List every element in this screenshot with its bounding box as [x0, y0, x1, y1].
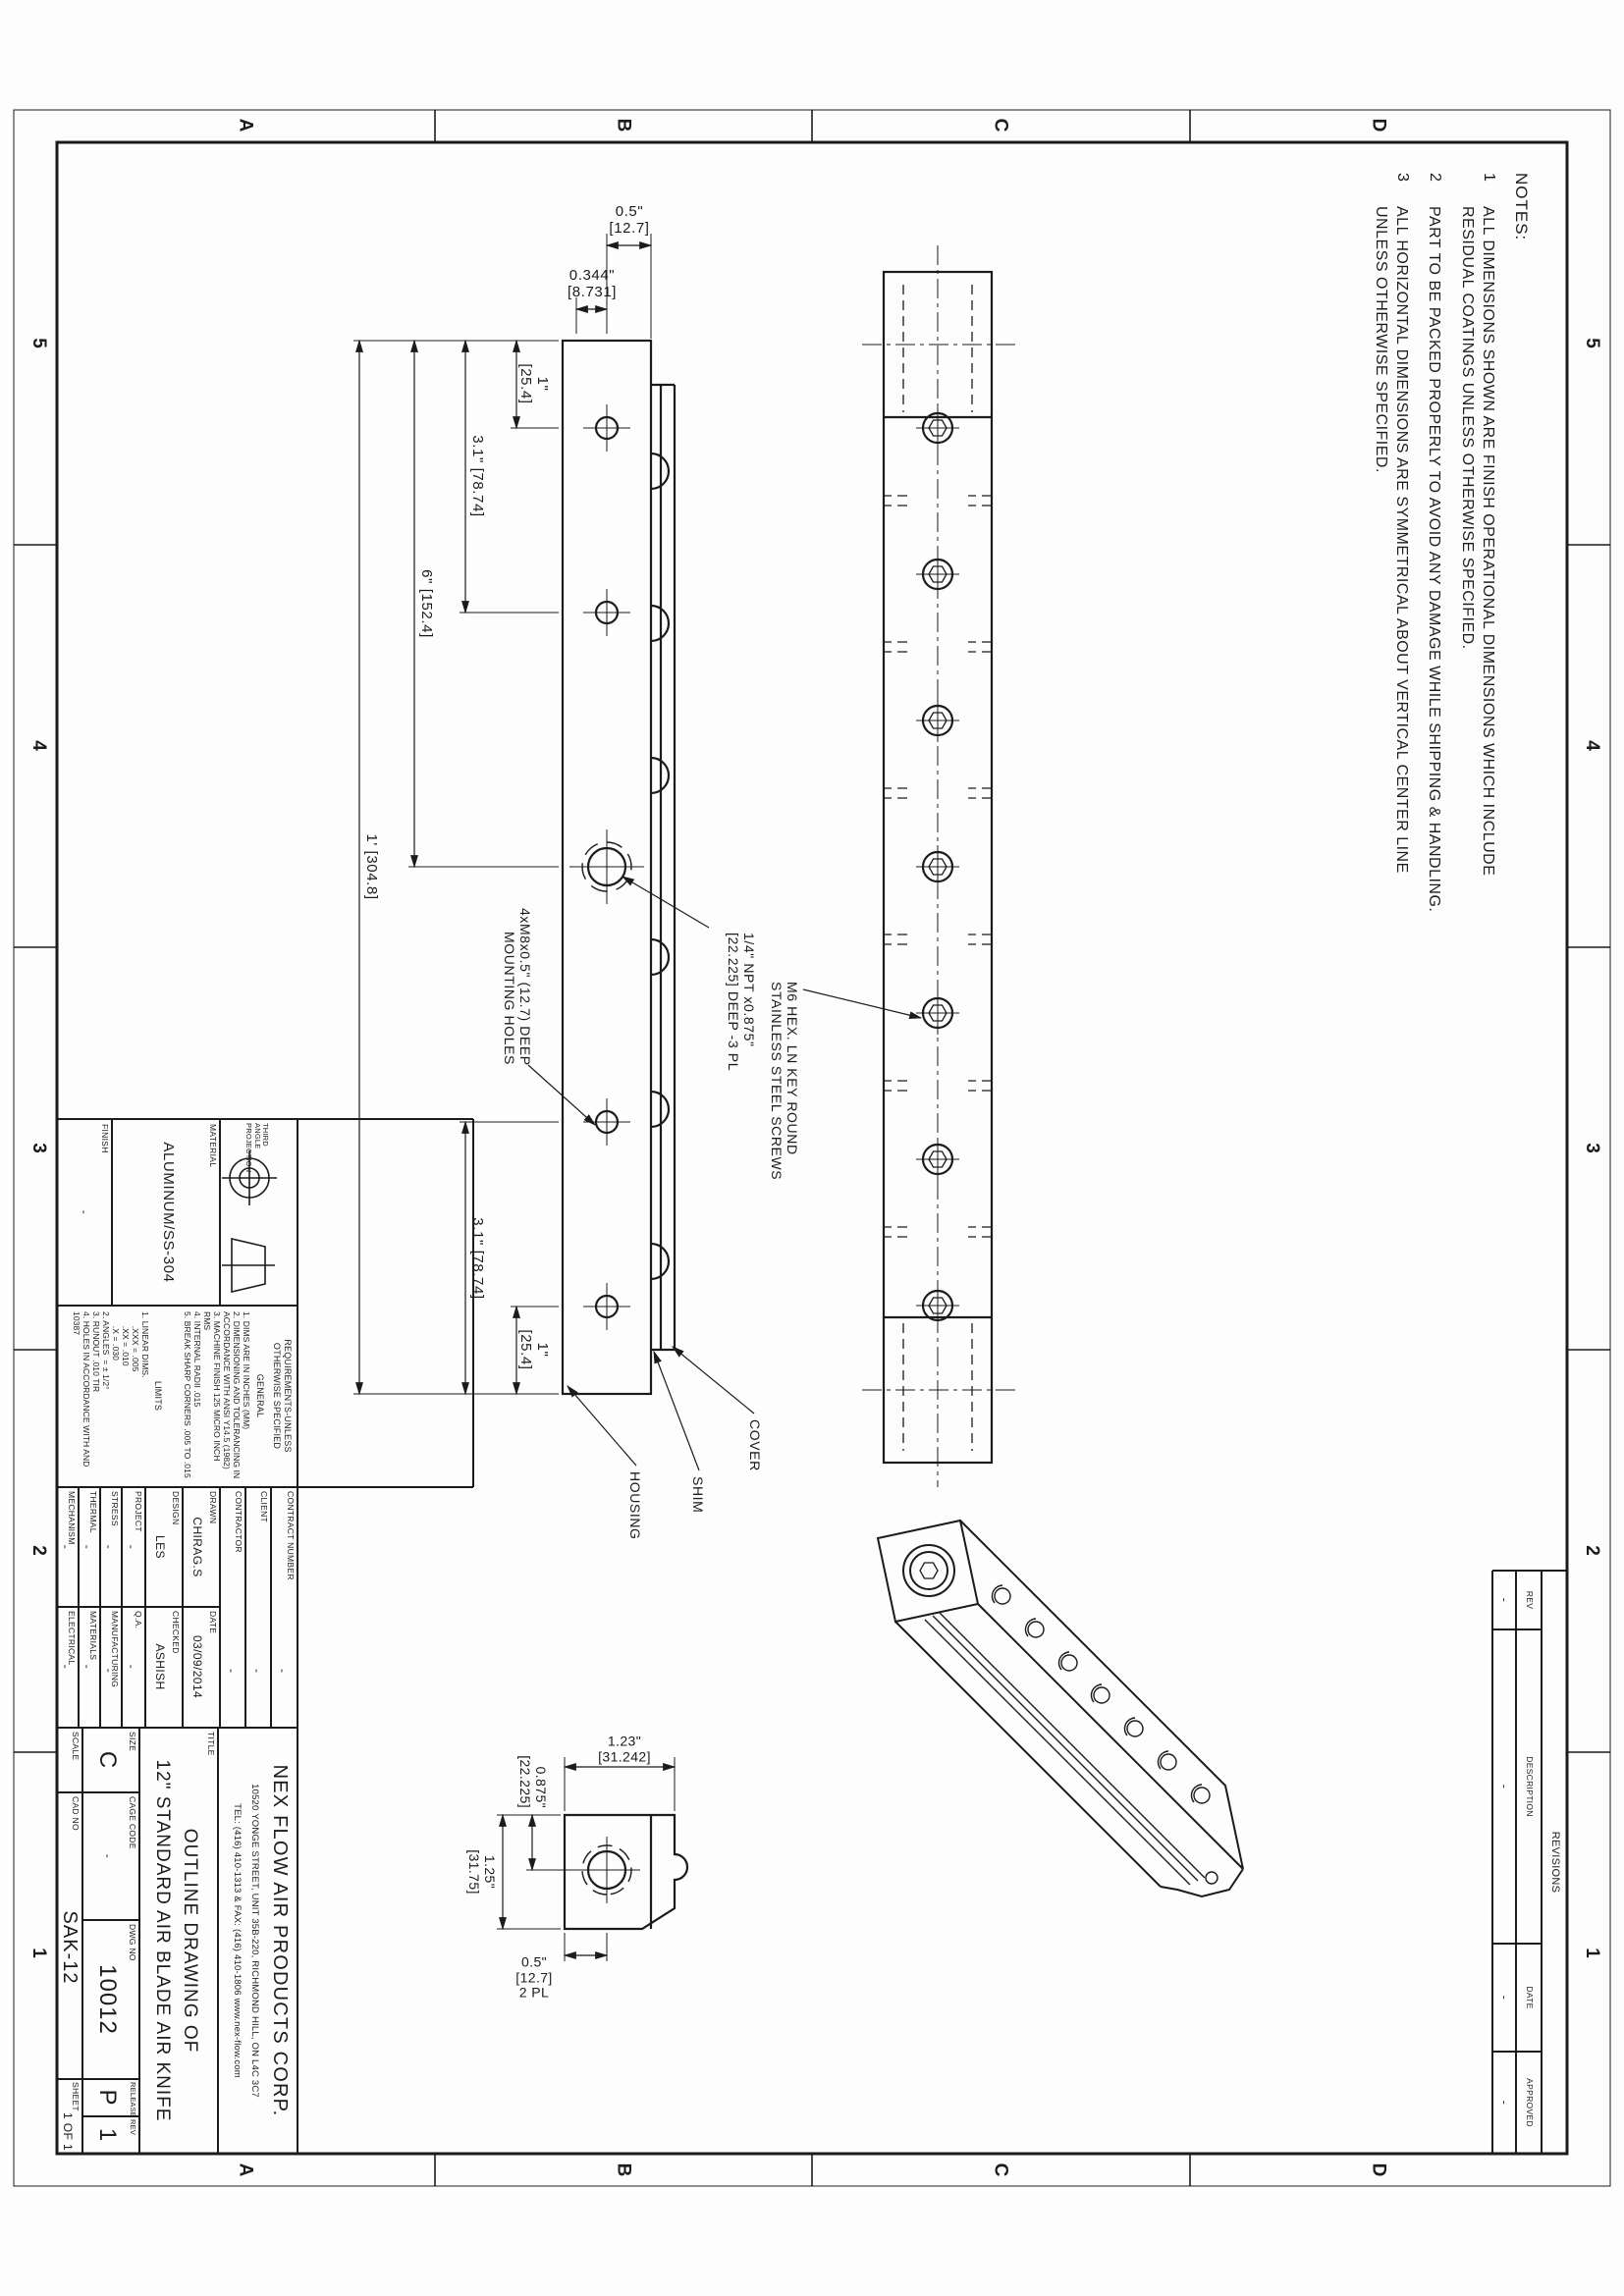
zone-col-label: 3 — [1582, 1143, 1602, 1154]
revision-date-value: - — [1497, 1996, 1510, 2000]
drawing-title-line1: OUTLINE DRAWING OF — [180, 1829, 200, 2053]
cage-value: - — [101, 1854, 114, 1858]
revisions-col-approved: APPROVED — [1524, 2078, 1534, 2127]
contract-label: CONTRACT NUMBER — [285, 1491, 295, 1580]
notes-title: NOTES: — [1511, 173, 1531, 1056]
m6-callout: M6 HEX. LN KEY ROUNDSTAINLESS STEEL SCRE… — [769, 982, 799, 1180]
revision-rev-value: - — [1497, 1598, 1510, 1602]
dim-0p344in: 0.344"[8.731] — [568, 268, 617, 301]
zone-col-label: 1 — [28, 1948, 49, 1959]
note-item: 1 ALL DIMENSIONS SHOWN ARE FINISH OPERAT… — [1456, 173, 1497, 1056]
zone-col-label: 1 — [1582, 1948, 1602, 1959]
electrical-value: - — [59, 1665, 72, 1669]
thermal-label: THERMAL — [87, 1491, 97, 1533]
dim-1p23in: 1.23"[31.242] — [598, 1734, 651, 1764]
dim-3p1in: 3.1" [78.74] — [468, 1217, 485, 1299]
zone-row-label: B — [613, 119, 633, 133]
sheet-value: 1 OF 1 — [61, 2112, 74, 2151]
company-address: 10520 YONGE STREET, UNIT 35B-220, RICHMO… — [248, 1784, 259, 2098]
zone-row-label: C — [990, 119, 1010, 133]
note-number: 2 — [1424, 173, 1444, 206]
note-line: RESIDUAL COATINGS UNLESS OTHERWISE SPECI… — [1456, 206, 1477, 876]
stress-label: STRESS — [109, 1491, 119, 1526]
zone-col-label: 4 — [1582, 740, 1602, 752]
engineering-drawing-sheet: 5 4 3 2 1 5 4 3 2 1 D C B A D C B A NOTE… — [0, 0, 1624, 2296]
cad-label: CAD NO — [70, 1796, 80, 1831]
zone-col-label: 2 — [1582, 1545, 1602, 1557]
scale-label: SCALE — [70, 1732, 80, 1760]
contractor-value: - — [225, 1669, 238, 1673]
dim-6in: 6" [152.4] — [417, 569, 434, 638]
qa-value: - — [125, 1665, 137, 1669]
size-label: SIZE — [127, 1732, 136, 1751]
release-value: P — [93, 2089, 120, 2106]
note-item: 2 PART TO BE PACKED PROPERLY TO AVOID AN… — [1424, 173, 1444, 1056]
contractor-label: CONTRACTOR — [233, 1491, 243, 1553]
contract-value: - — [276, 1669, 289, 1673]
requirements-general-heading: GENERAL — [254, 1374, 265, 1417]
note-line: ALL DIMENSIONS SHOWN ARE FINISH OPERATIO… — [1477, 206, 1497, 876]
mechanism-value: - — [59, 1545, 72, 1549]
dim-1in: 1"[25.4] — [516, 1329, 550, 1369]
project-label: PROJECT — [133, 1491, 142, 1532]
list-line: 3. MACHINE FINISH 125 MICRO INCH RMS — [202, 1311, 222, 1482]
design-value: LES — [153, 1535, 166, 1559]
note-line: UNLESS OTHERWISE SPECIFIED. — [1370, 206, 1390, 874]
zone-col-label: 5 — [28, 338, 49, 349]
material-value: ALUMINUM/SS-304 — [159, 1142, 176, 1282]
manufacturing-value: - — [102, 1669, 115, 1673]
list-line: 5. BREAK SHARP CORNERS .005 TO .015 — [183, 1311, 192, 1482]
mechanism-label: MECHANISM — [66, 1491, 76, 1545]
thermal-value: - — [81, 1545, 93, 1549]
zone-row-label: B — [613, 2163, 633, 2178]
dim-0p5in: 0.5"[12.7] — [609, 204, 649, 238]
zone-col-label: 5 — [1582, 338, 1602, 349]
note-text: PART TO BE PACKED PROPERLY TO AVOID ANY … — [1424, 206, 1444, 912]
title-label: TITLE — [205, 1732, 215, 1756]
zone-row-label: A — [235, 119, 255, 133]
stress-value: - — [102, 1545, 115, 1549]
dim-3p1in: 3.1" [78.74] — [468, 435, 485, 516]
list-line: 2. DIMENSIONING AND TOLERANCING IN ACCOR… — [222, 1311, 242, 1482]
zone-col-label: 4 — [28, 740, 49, 752]
list-line: 1. LINEAR DIMS. — [140, 1311, 150, 1482]
list-line: 3. RUNOUT .010 TIR — [91, 1311, 101, 1482]
note-line: ALL HORIZONTAL DIMENSIONS ARE SYMMETRICA… — [1390, 206, 1411, 874]
finish-label: FINISH — [99, 1124, 109, 1153]
dwg-value: 10012 — [93, 1964, 120, 2035]
list-line: .XXX = .005 — [131, 1311, 140, 1482]
note-number: 1 — [1456, 173, 1497, 206]
dim-1in: 1"[25.4] — [516, 363, 550, 403]
project-value: - — [125, 1545, 137, 1549]
cage-label: CAGE CODE — [127, 1796, 136, 1849]
dim-1p25in: 1.25"[31.75] — [466, 1849, 497, 1895]
list-line: .XX = .010 — [121, 1311, 131, 1482]
dim-0p5-2pl: 0.5"[12.7]2 PL — [515, 1954, 552, 2001]
cover-label: COVER — [746, 1419, 762, 1471]
note-number: 3 — [1370, 173, 1411, 206]
list-line: 4. INTERNAL RADII .015 — [192, 1311, 202, 1482]
requirements-limits-items: 1. LINEAR DIMS. .XXX = .005 .XX = .010 .… — [72, 1311, 150, 1482]
npt-callout: 1/4" NPT x0.875"[22.225] DEEP -3 PL — [726, 933, 756, 1071]
cad-value: SAK-12 — [59, 1911, 81, 1985]
note-item: 3 ALL HORIZONTAL DIMENSIONS ARE SYMMETRI… — [1370, 173, 1411, 1056]
projection-label: THIRD ANGLEPROJECTION — [244, 1123, 269, 1174]
date-label: DATE — [207, 1611, 217, 1633]
note-text: ALL DIMENSIONS SHOWN ARE FINISH OPERATIO… — [1456, 206, 1497, 876]
electrical-label: ELECTRICAL — [66, 1611, 76, 1665]
list-line: 2. ANGLES = ± 1/2° — [101, 1311, 111, 1482]
client-value: - — [250, 1669, 263, 1673]
m8-callout: 4xM8x0.5" (12.7) DEEPMOUNTING HOLES — [502, 908, 532, 1065]
zone-row-label: D — [1368, 2163, 1388, 2178]
requirements-limits-heading: LIMITS — [152, 1381, 163, 1411]
zone-col-label: 2 — [28, 1545, 49, 1557]
requirements-general-items: 1. DIMS ARE IN INCHES (MM)2. DIMENSIONIN… — [183, 1311, 251, 1482]
dim-0p875in: 0.875"[22.225] — [517, 1730, 548, 1808]
zone-row-label: D — [1368, 119, 1388, 133]
zone-row-label: C — [990, 2163, 1010, 2178]
drawing-title-line2: 12" STANDARD AIR BLADE AIR KNIFE — [152, 1760, 173, 2122]
release-label: RELEASE — [129, 2082, 136, 2117]
note-line: PART TO BE PACKED PROPERLY TO AVOID ANY … — [1424, 206, 1444, 912]
dwg-label: DWG NO — [127, 1924, 136, 1961]
checked-value: ASHISH — [153, 1643, 166, 1689]
drawn-value: CHIRAG.S — [190, 1517, 203, 1576]
date-value: 03/09/2014 — [190, 1635, 203, 1698]
client-label: CLIENT — [258, 1491, 268, 1522]
zone-row-label: A — [235, 2163, 255, 2178]
manufacturing-label: MANUFACTURING — [109, 1611, 119, 1687]
material-label: MATERIAL — [207, 1124, 217, 1167]
housing-label: HOUSING — [626, 1471, 642, 1540]
revision-description-value: - — [1497, 1785, 1510, 1789]
shim-label: SHIM — [689, 1476, 705, 1513]
materials-label: MATERIALS — [87, 1611, 97, 1660]
materials-value: - — [81, 1665, 93, 1669]
revisions-col-date: DATE — [1524, 1986, 1534, 2008]
company-tel: TEL: (416) 410-1313 & FAX: (416) 410-180… — [231, 1803, 242, 2078]
revisions-col-rev: REV — [1524, 1591, 1534, 1609]
finish-value: - — [78, 1210, 90, 1214]
revisions-title: REVISIONS — [1549, 1832, 1561, 1894]
list-line: .X = .030 — [111, 1311, 121, 1482]
note-text: ALL HORIZONTAL DIMENSIONS ARE SYMMETRICA… — [1370, 206, 1411, 874]
drawn-label: DRAWN — [207, 1491, 217, 1523]
landscape-sheet: 5 4 3 2 1 5 4 3 2 1 D C B A D C B A NOTE… — [0, 0, 1624, 2296]
zone-col-label: 3 — [28, 1143, 49, 1154]
list-line: 4. HOLES IN ACCORDANCE WITH AND 10387 — [72, 1311, 91, 1482]
checked-label: CHECKED — [170, 1611, 180, 1654]
rev-label: REV — [129, 2119, 136, 2135]
revision-approved-value: - — [1497, 2101, 1510, 2105]
list-line: 1. DIMS ARE IN INCHES (MM) — [242, 1311, 251, 1482]
sheet-label: SHEET — [70, 2082, 80, 2111]
design-label: DESIGN — [170, 1491, 180, 1524]
requirements-header: REQUIREMENTS-UNLESSOTHERWISE SPECIFIED — [271, 1308, 293, 1484]
general-notes: NOTES: 1 ALL DIMENSIONS SHOWN ARE FINISH… — [1357, 173, 1531, 1056]
dim-1ft: 1' [304.8] — [362, 833, 379, 899]
company-name: NEX FLOW AIR PRODUCTS CORP. — [269, 1765, 291, 2117]
size-value: C — [93, 1751, 120, 1769]
revisions-col-description: DESCRIPTION — [1524, 1756, 1534, 1816]
rev-value: 1 — [93, 2128, 120, 2142]
qa-label: Q.A. — [133, 1611, 142, 1629]
